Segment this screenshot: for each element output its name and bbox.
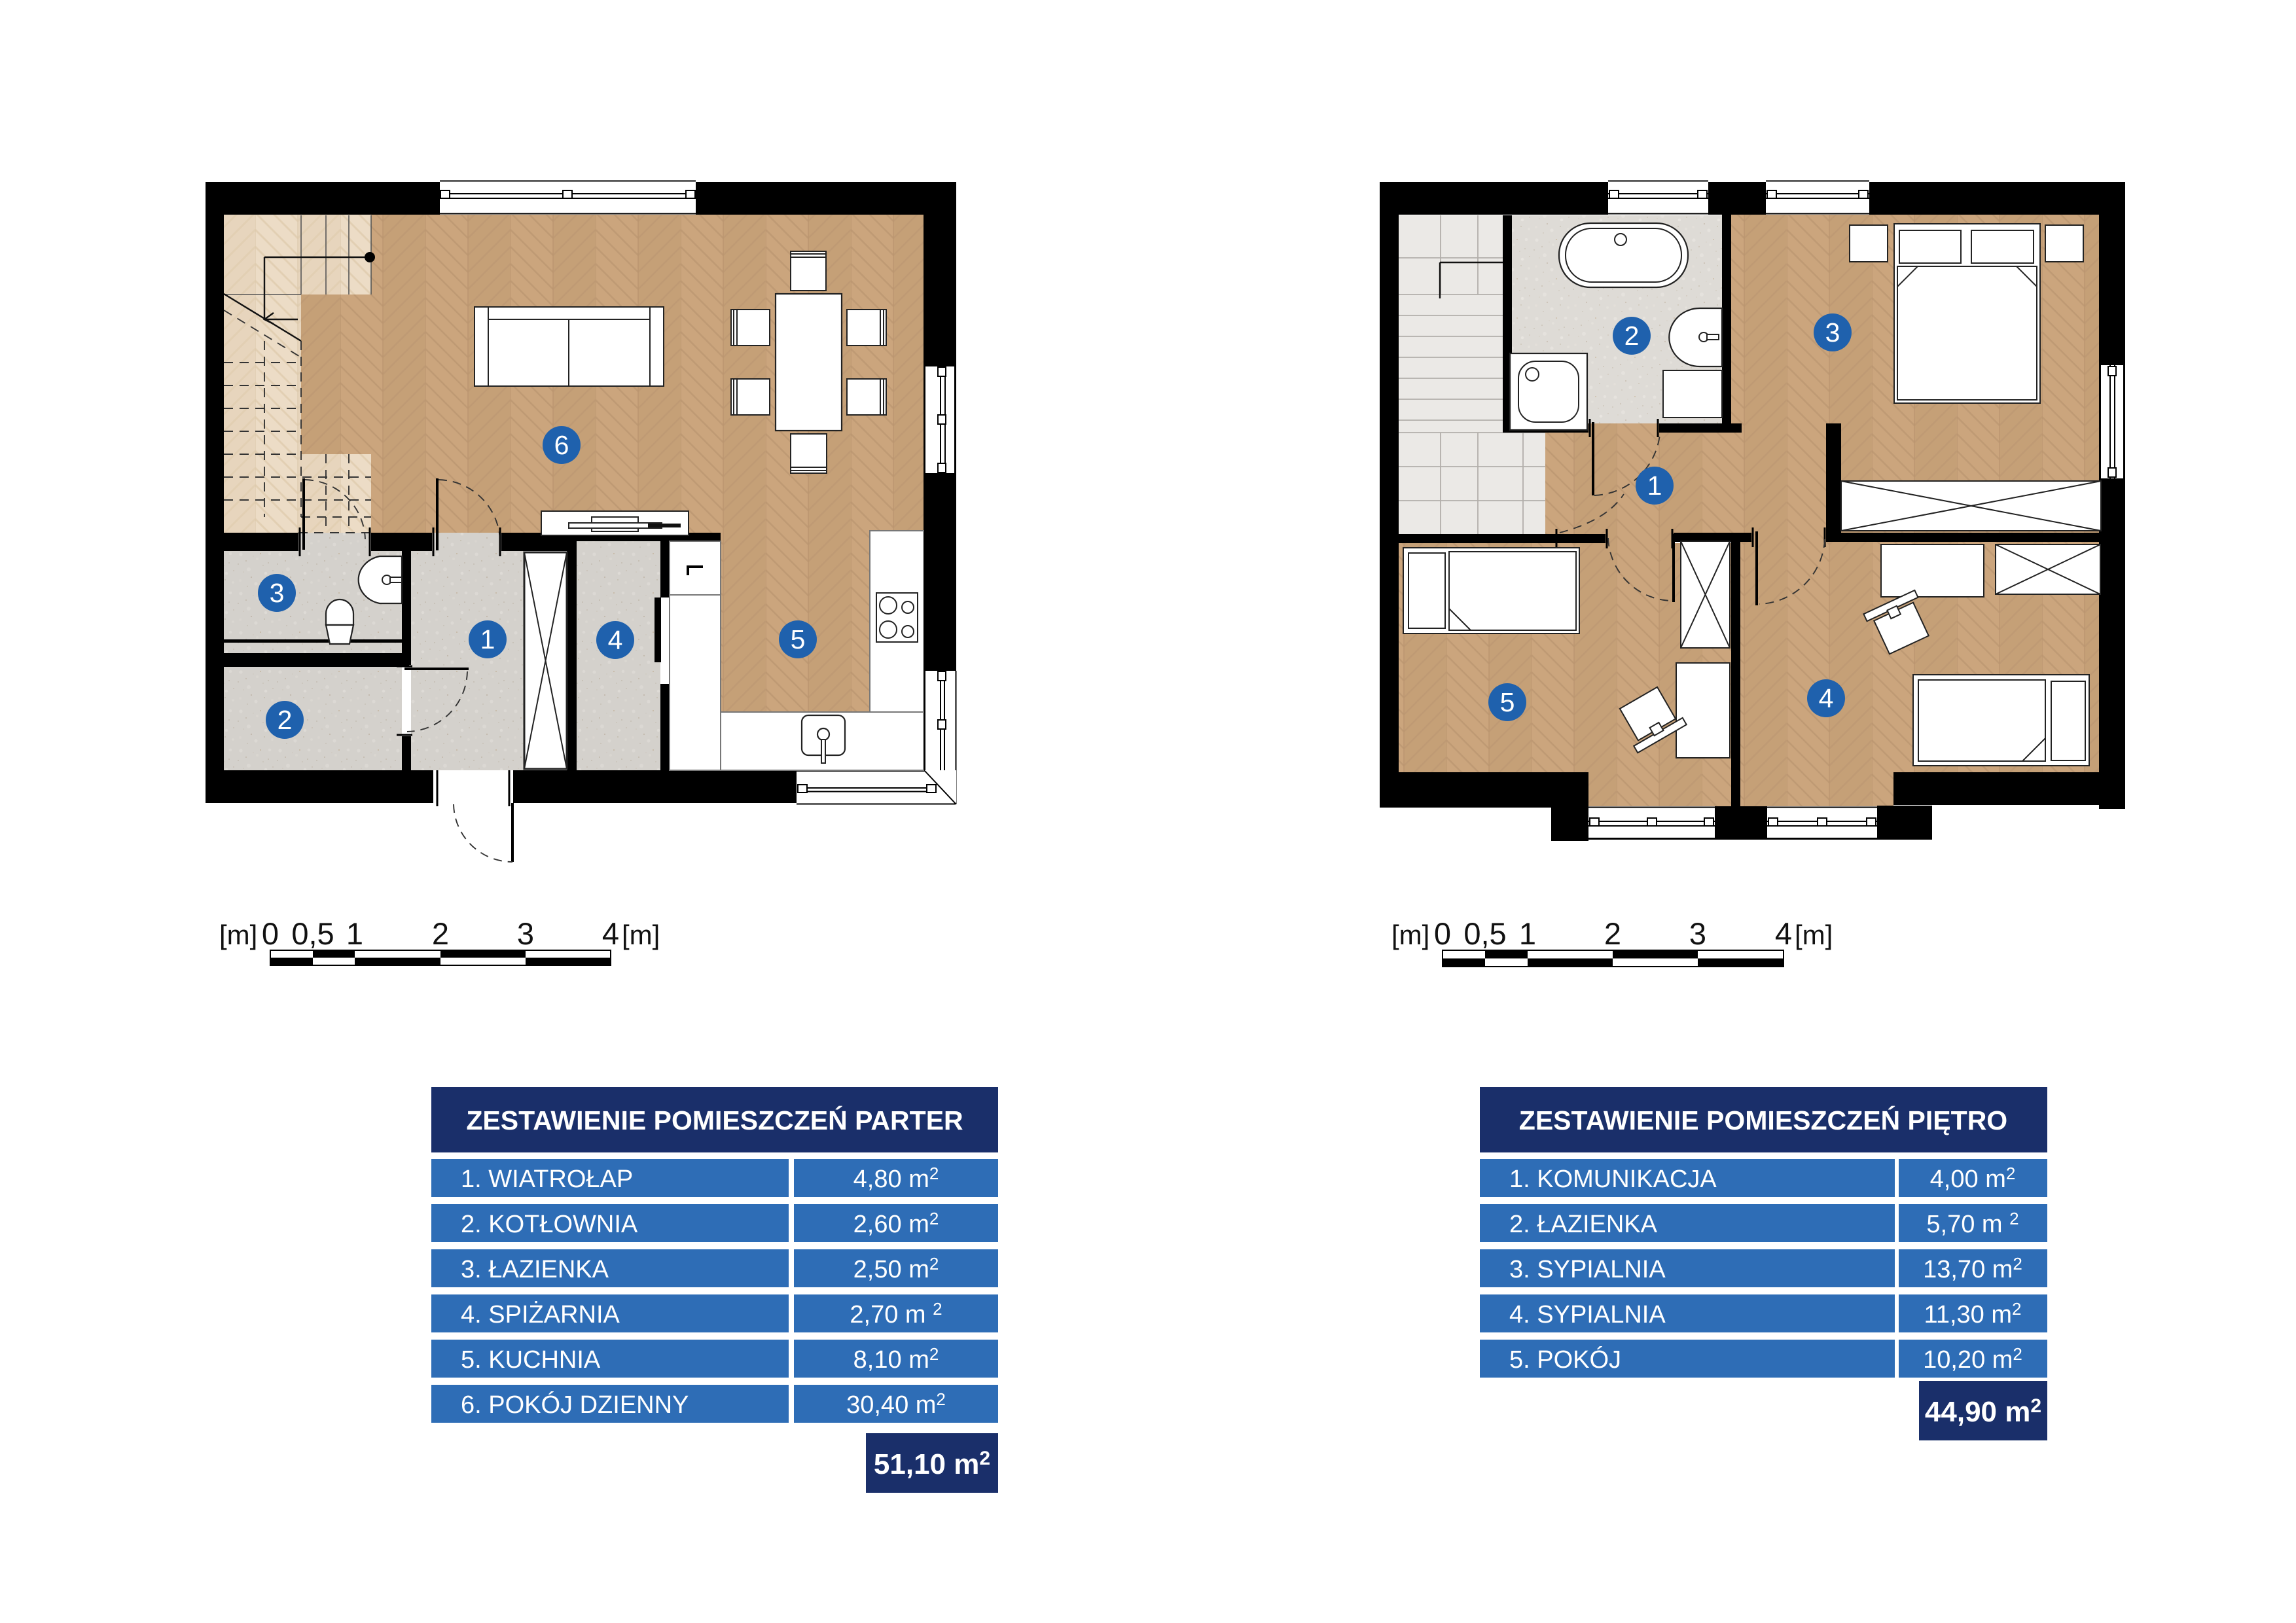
svg-text:2. KOTŁOWNIA: 2. KOTŁOWNIA [461, 1211, 638, 1238]
svg-text:10,20 m2: 10,20 m2 [1923, 1344, 2022, 1374]
svg-text:5. POKÓJ: 5. POKÓJ [1509, 1346, 1621, 1374]
svg-text:1: 1 [480, 624, 495, 654]
svg-text:3: 3 [1689, 916, 1706, 951]
svg-text:44,90 m2: 44,90 m2 [1925, 1395, 2041, 1428]
svg-text:5,70 m 2: 5,70 m 2 [1926, 1209, 2018, 1238]
svg-text:6: 6 [554, 430, 569, 460]
svg-text:3: 3 [517, 916, 534, 951]
svg-text:4: 4 [1775, 916, 1792, 951]
svg-text:1. KOMUNIKACJA: 1. KOMUNIKACJA [1509, 1166, 1717, 1193]
svg-text:13,70 m2: 13,70 m2 [1923, 1254, 2022, 1283]
svg-text:[m]: [m] [1391, 919, 1429, 950]
svg-text:2: 2 [278, 705, 293, 735]
svg-text:51,10 m2: 51,10 m2 [874, 1448, 990, 1480]
svg-text:2. ŁAZIENKA: 2. ŁAZIENKA [1509, 1211, 1658, 1238]
svg-text:3. SYPIALNIA: 3. SYPIALNIA [1509, 1256, 1666, 1283]
svg-text:3: 3 [1825, 317, 1840, 348]
svg-text:2: 2 [432, 916, 449, 951]
svg-text:4: 4 [608, 625, 623, 655]
svg-text:4: 4 [1819, 683, 1834, 713]
svg-text:0: 0 [262, 916, 279, 951]
svg-text:4,00 m2: 4,00 m2 [1930, 1164, 2016, 1193]
svg-text:5: 5 [1500, 687, 1515, 717]
svg-text:1. WIATROŁAP: 1. WIATROŁAP [461, 1166, 633, 1193]
svg-text:0,5: 0,5 [291, 916, 334, 951]
svg-text:11,30 m2: 11,30 m2 [1924, 1299, 2022, 1329]
svg-text:2,70 m 2: 2,70 m 2 [850, 1299, 942, 1329]
svg-text:[m]: [m] [219, 919, 257, 950]
svg-text:4: 4 [602, 916, 619, 951]
svg-text:1: 1 [346, 916, 363, 951]
svg-text:5. KUCHNIA: 5. KUCHNIA [461, 1346, 601, 1374]
svg-text:ZESTAWIENIE POMIESZCZEŃ PIĘTRO: ZESTAWIENIE POMIESZCZEŃ PIĘTRO [1519, 1105, 2007, 1135]
svg-text:2: 2 [1624, 321, 1640, 351]
svg-text:1: 1 [1519, 916, 1536, 951]
svg-text:2: 2 [1604, 916, 1621, 951]
svg-text:5: 5 [791, 624, 806, 654]
svg-text:6. POKÓJ DZIENNY: 6. POKÓJ DZIENNY [461, 1391, 689, 1419]
svg-text:1: 1 [1647, 471, 1662, 501]
svg-text:0: 0 [1434, 916, 1451, 951]
svg-text:4. SYPIALNIA: 4. SYPIALNIA [1509, 1301, 1666, 1329]
svg-text:2,50 m2: 2,50 m2 [853, 1254, 939, 1283]
svg-text:30,40 m2: 30,40 m2 [846, 1389, 946, 1419]
svg-text:3. ŁAZIENKA: 3. ŁAZIENKA [461, 1256, 609, 1283]
svg-text:4. SPIŻARNIA: 4. SPIŻARNIA [461, 1300, 620, 1329]
svg-text:4,80 m2: 4,80 m2 [853, 1164, 939, 1193]
svg-text:[m]: [m] [622, 919, 660, 950]
svg-text:0,5: 0,5 [1463, 916, 1506, 951]
svg-text:8,10 m2: 8,10 m2 [853, 1344, 939, 1374]
svg-text:ZESTAWIENIE POMIESZCZEŃ PARTER: ZESTAWIENIE POMIESZCZEŃ PARTER [466, 1105, 963, 1135]
svg-text:2,60 m2: 2,60 m2 [853, 1209, 939, 1238]
svg-text:[m]: [m] [1795, 919, 1833, 950]
svg-text:3: 3 [270, 578, 285, 608]
